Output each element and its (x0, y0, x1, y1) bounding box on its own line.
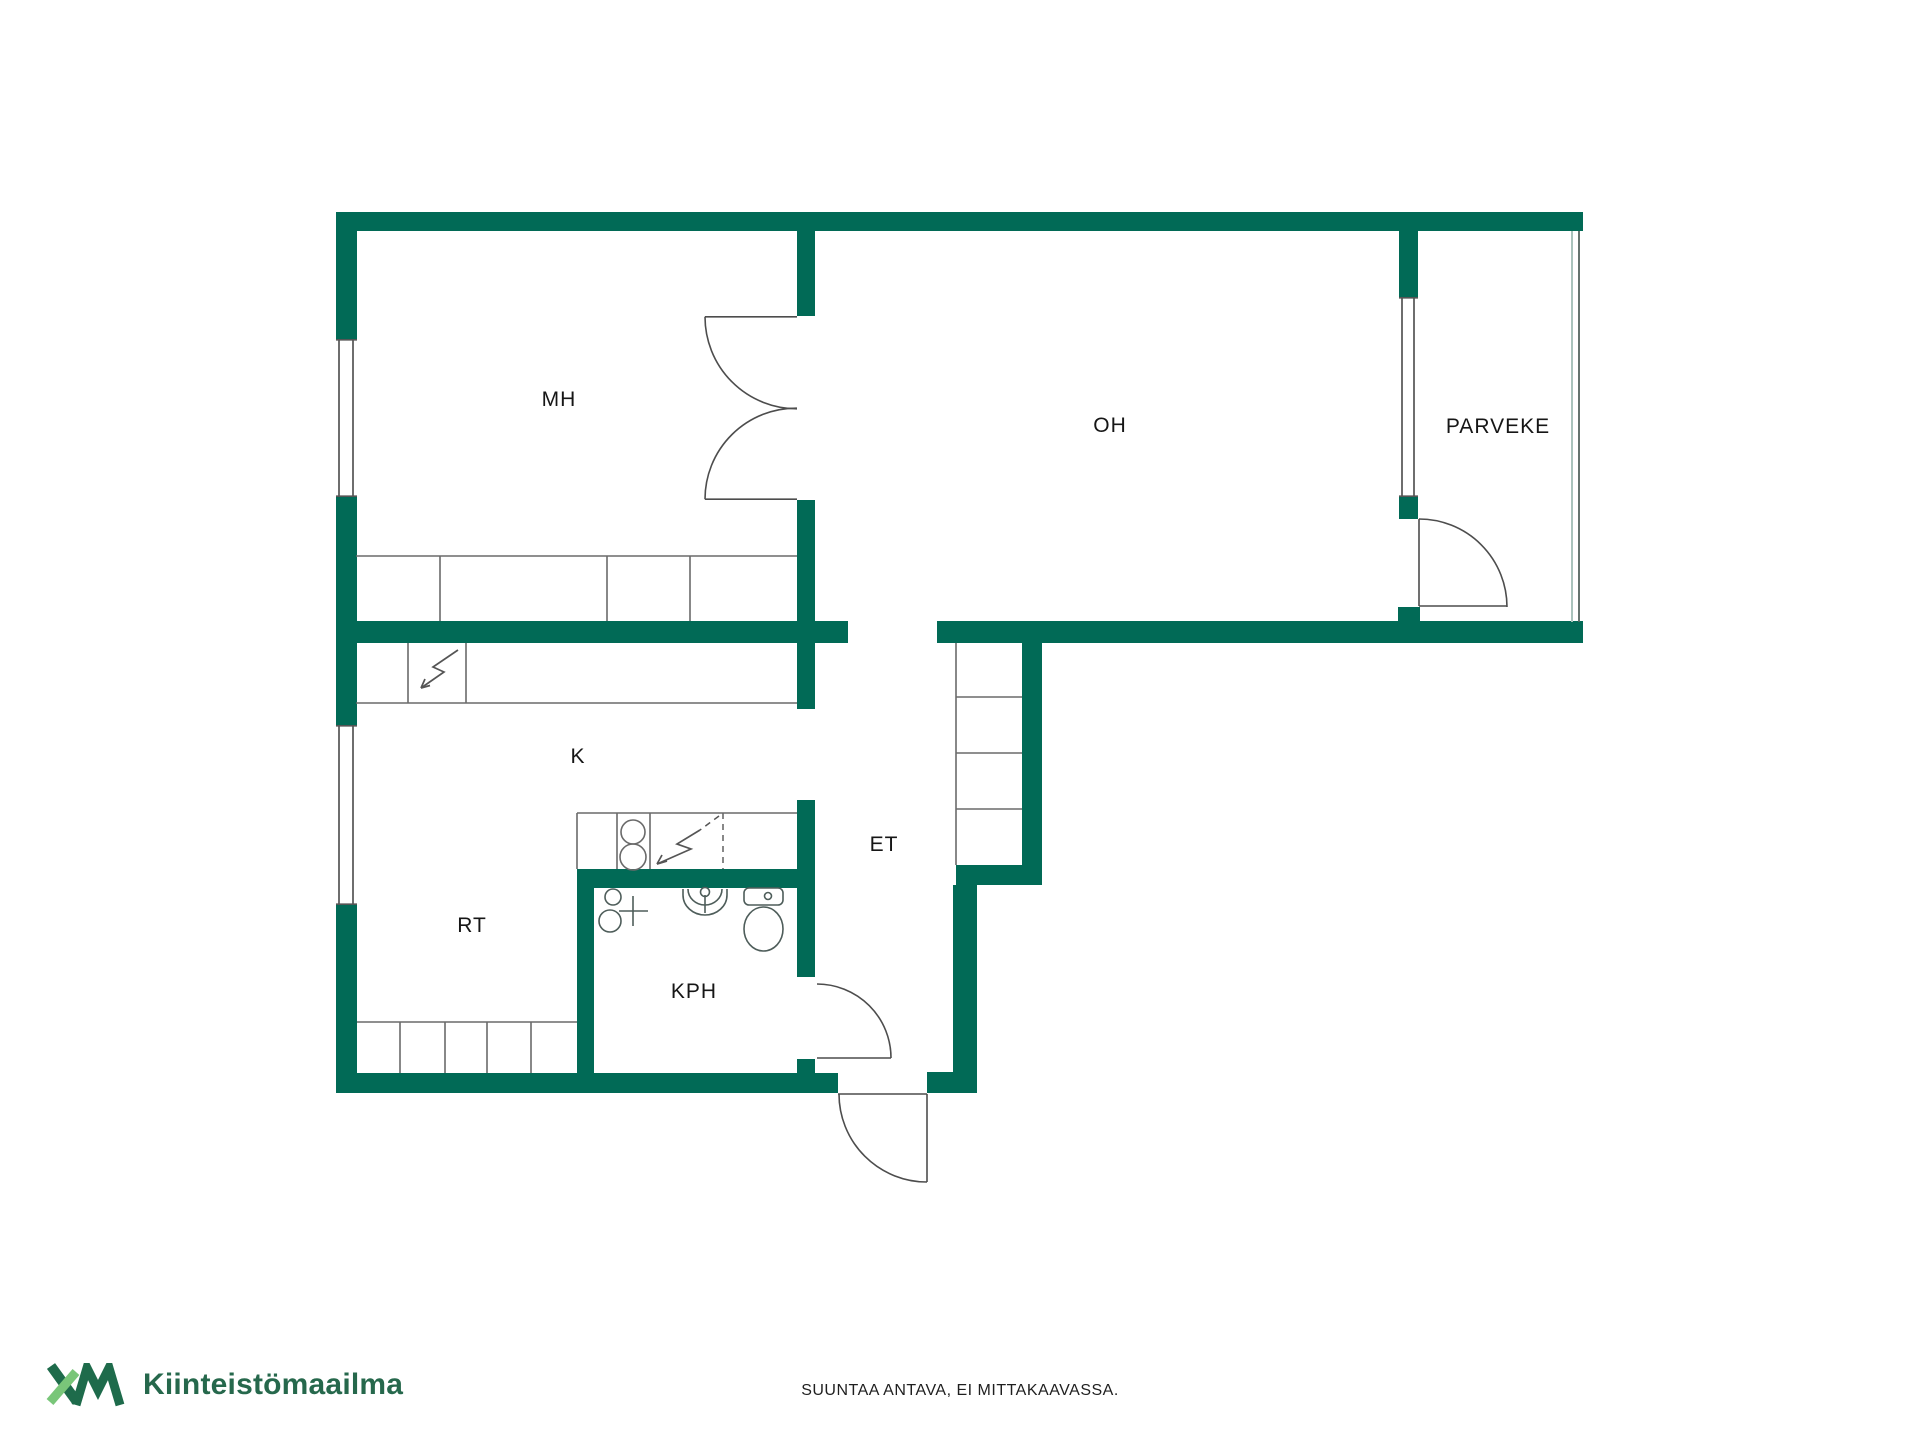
sink-symbol (683, 888, 727, 916)
lightning-icon (657, 830, 700, 864)
wall-segment (797, 500, 815, 709)
wall-segment (1399, 212, 1418, 297)
electrical-panel-symbol (408, 643, 466, 703)
wall-segment (937, 621, 1583, 643)
wardrobe-row-mh (356, 556, 797, 621)
balcony-railing (1572, 231, 1579, 622)
room-label-k: K (570, 745, 585, 769)
wall-segment (336, 621, 848, 643)
entry-door (838, 1094, 927, 1182)
room-label-oh: OH (1093, 414, 1127, 438)
brand-name: Kiinteistömaailma (143, 1368, 403, 1402)
room-label-rt: RT (457, 914, 487, 938)
wall-segment (577, 869, 594, 1093)
bathroom-door (817, 984, 891, 1058)
wall-segment (1399, 497, 1418, 519)
kitchen-counter (577, 813, 797, 869)
stove-symbol (620, 820, 646, 870)
floorplan-canvas: MH OH PARVEKE K ET RT KPH (0, 0, 1920, 1440)
wall-segment (797, 212, 815, 316)
wall-segment (577, 869, 815, 888)
wall-segment (927, 1072, 953, 1093)
bathroom-fixtures (599, 888, 783, 952)
disclaimer-text: SUUNTAA ANTAVA, EI MITTAKAAVASSA. (801, 1382, 1119, 1400)
wall-segment (336, 212, 357, 339)
wall-segment (1022, 621, 1042, 885)
windows (336, 297, 1418, 905)
window-kitchen (336, 725, 357, 905)
room-label-et: ET (870, 833, 899, 857)
doors (705, 317, 1507, 1182)
km-logo-icon (46, 1363, 126, 1407)
brand-footer: Kiinteistömaailma (46, 1363, 403, 1407)
room-label-parveke: PARVEKE (1446, 415, 1550, 439)
double-door-mh (705, 317, 797, 499)
floorplan-drawing (0, 0, 1920, 1440)
wall-segment (797, 1059, 815, 1093)
toilet-symbol (744, 888, 783, 951)
walls (336, 212, 1583, 1093)
room-label-kph: KPH (671, 980, 717, 1004)
window-oh-balcony (1399, 297, 1418, 497)
room-label-mh: MH (542, 388, 577, 412)
lightning-icon (421, 650, 458, 688)
shower-mixer-symbol (599, 889, 648, 932)
appliance-reservation-symbol (657, 816, 719, 864)
wall-segment (336, 905, 357, 1093)
wall-segment (336, 212, 1583, 231)
balcony-door (1419, 519, 1507, 607)
cabinet-row-rt (357, 1022, 577, 1073)
wall-segment (953, 885, 977, 1093)
window-mh (336, 339, 357, 497)
wall-segment (336, 497, 357, 725)
wall-segment (797, 800, 815, 977)
wall-segment (1398, 607, 1420, 643)
wardrobe-column-et (956, 643, 1022, 865)
